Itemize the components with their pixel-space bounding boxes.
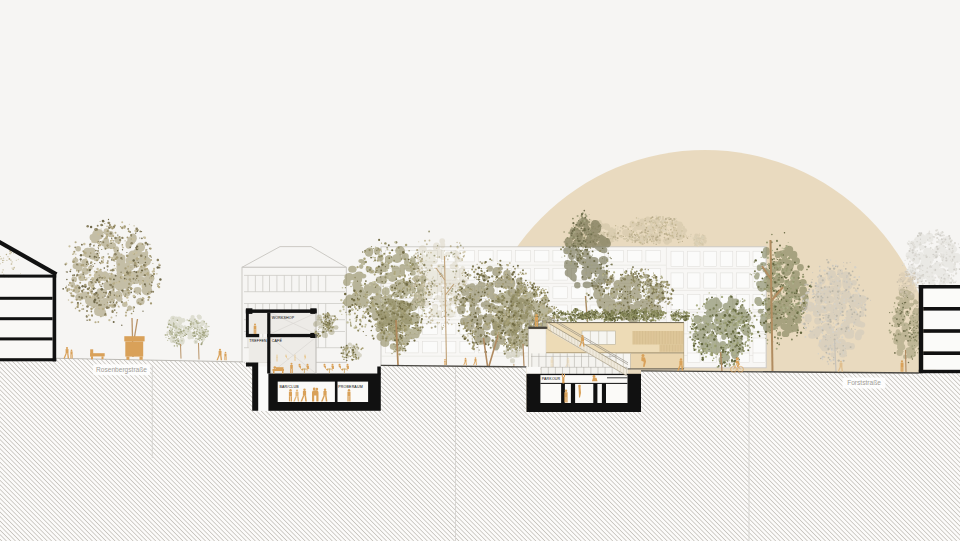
svg-text:WORKSHOP: WORKSHOP <box>272 316 295 320</box>
svg-text:PROBERAUM: PROBERAUM <box>338 385 363 389</box>
svg-text:BAR/CLUB: BAR/CLUB <box>280 385 300 389</box>
svg-text:Forststraße: Forststraße <box>847 379 881 386</box>
svg-text:CAFÉ: CAFÉ <box>272 338 283 343</box>
svg-text:TREFFEN: TREFFEN <box>249 339 267 343</box>
svg-text:PARKOUR: PARKOUR <box>542 377 561 381</box>
svg-text:Rosenbergstraße: Rosenbergstraße <box>96 366 147 374</box>
